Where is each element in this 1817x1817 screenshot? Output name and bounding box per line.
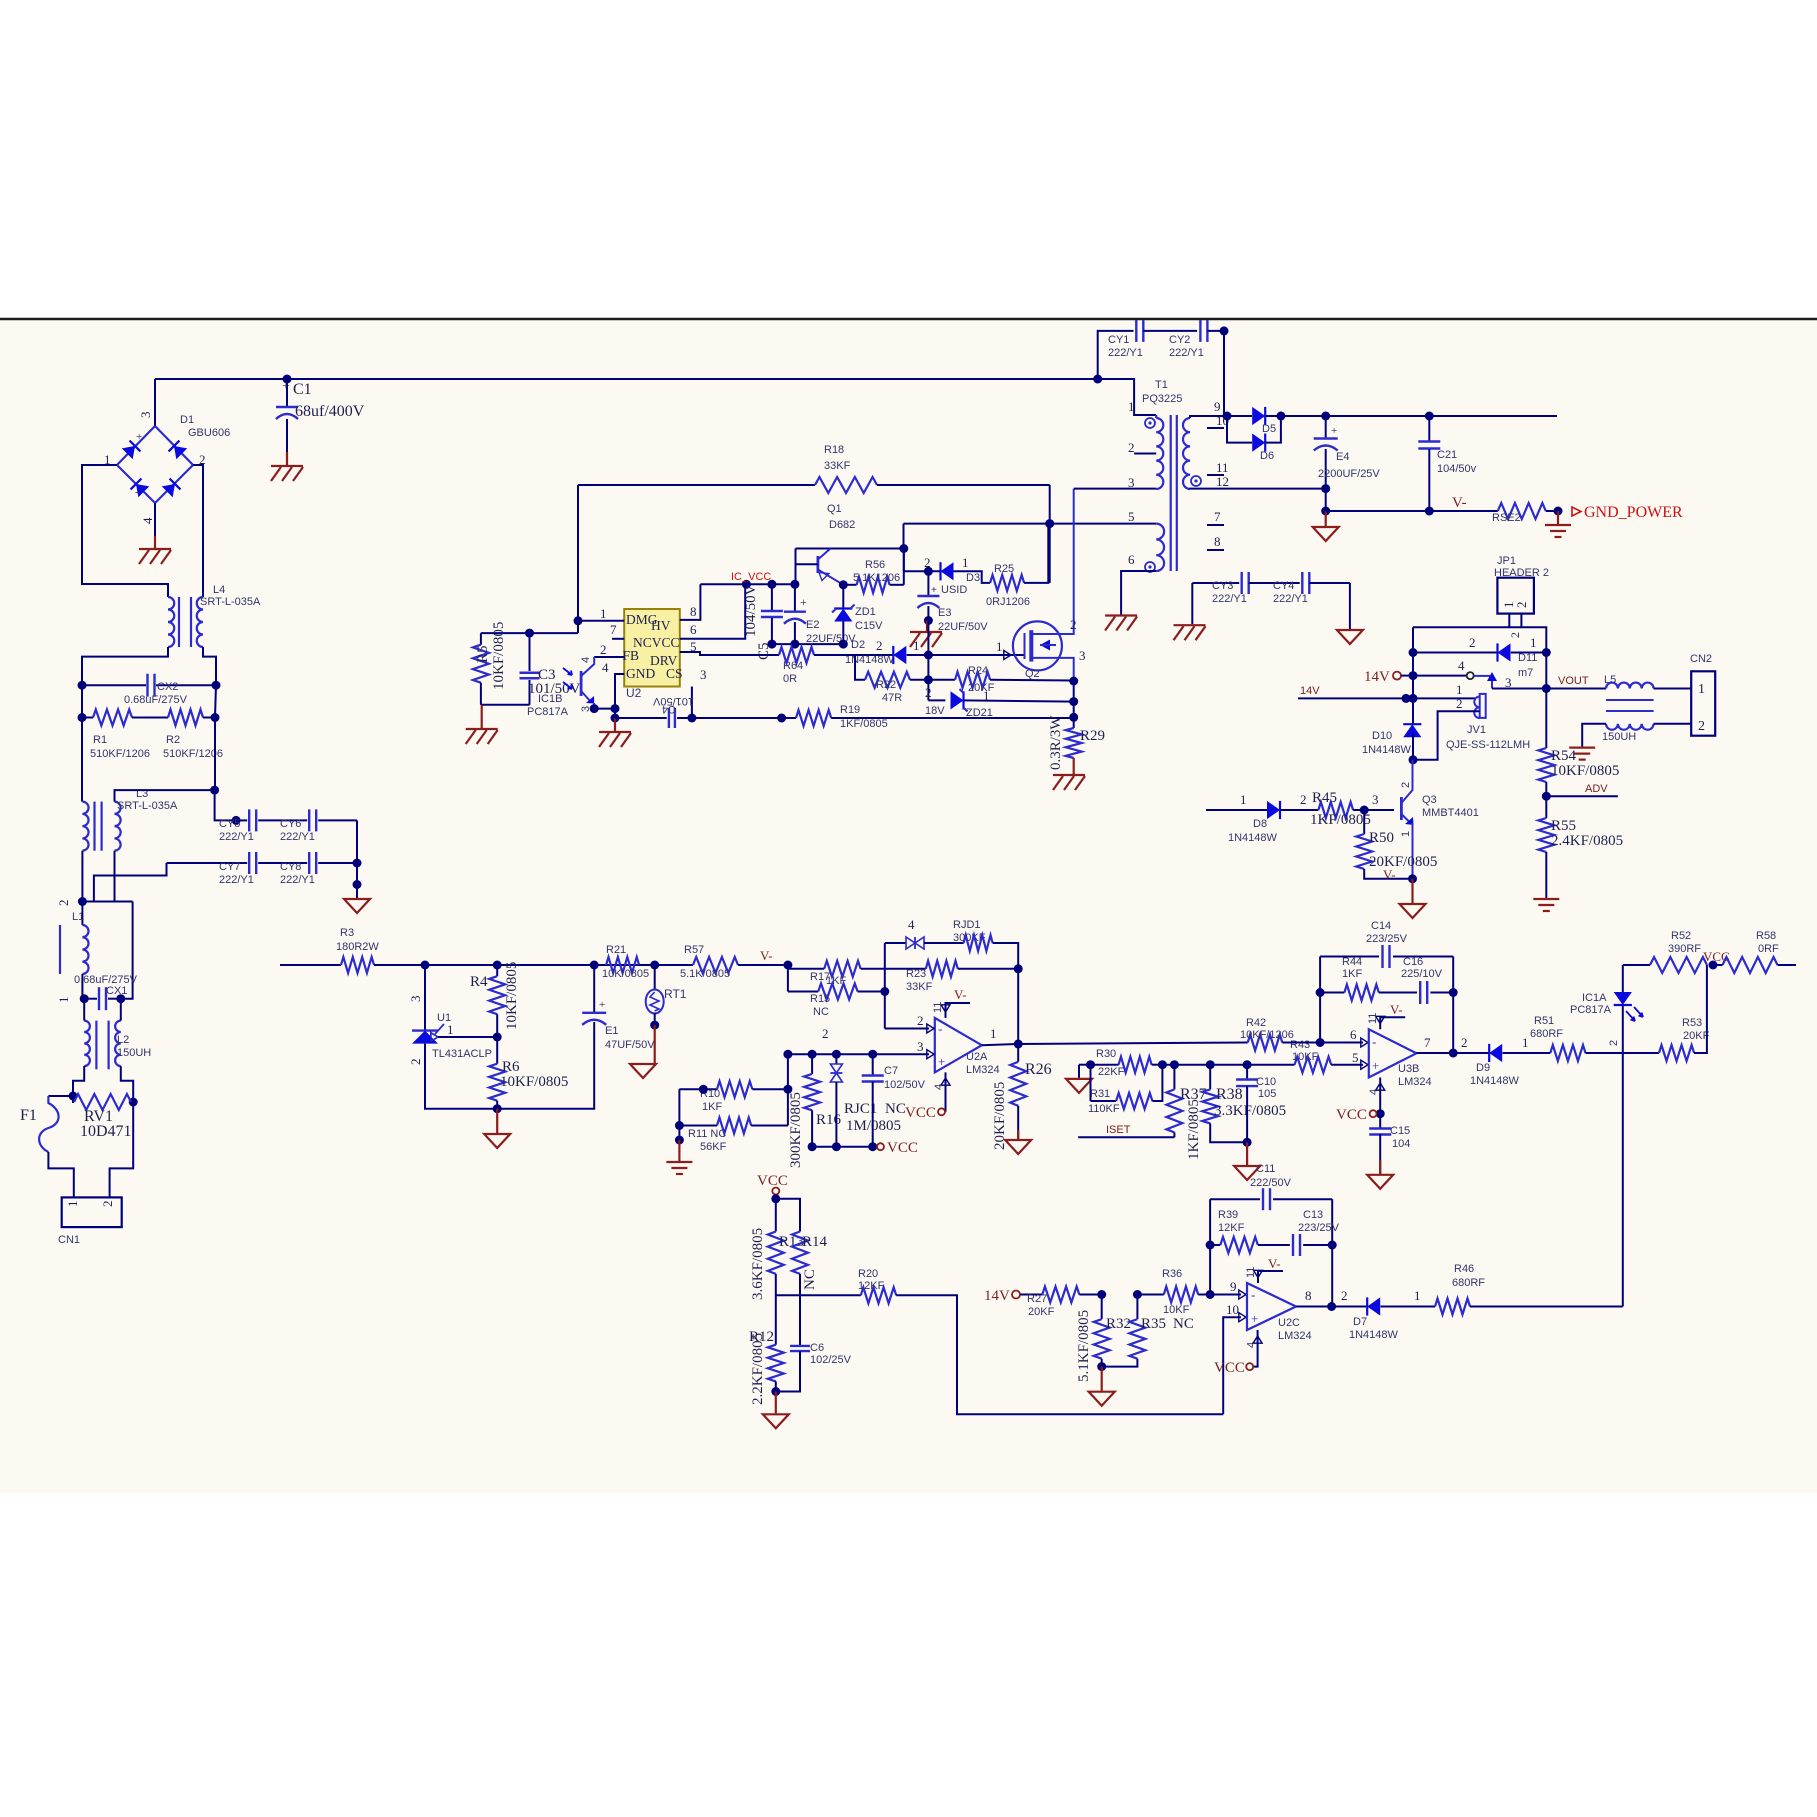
svg-text:ZD21: ZD21 [966,707,993,719]
svg-text:+: + [800,595,807,609]
svg-text:222/Y1: 222/Y1 [280,874,315,886]
svg-text:PQ3225: PQ3225 [1142,393,1182,405]
svg-text:1KF/0805: 1KF/0805 [1310,812,1371,828]
svg-text:222/Y1: 222/Y1 [1169,347,1204,359]
svg-text:510KF/1206: 510KF/1206 [90,748,150,760]
svg-text:2: 2 [822,1026,829,1041]
svg-text:-: - [1251,1287,1255,1302]
svg-text:1: 1 [962,555,969,570]
svg-text:IC1A: IC1A [1582,992,1607,1004]
svg-text:CY3: CY3 [1212,580,1233,592]
svg-text:10KF: 10KF [1292,1051,1319,1063]
svg-text:680RF: 680RF [1530,1028,1563,1040]
svg-text:56KF: 56KF [700,1141,727,1153]
svg-text:R56: R56 [865,559,885,571]
svg-text:C15: C15 [1390,1125,1410,1137]
svg-text:1KF/0805: 1KF/0805 [1186,1099,1202,1160]
svg-text:GBU606: GBU606 [188,427,230,439]
svg-text:R51: R51 [1534,1015,1554,1027]
svg-text:2: 2 [1128,440,1135,455]
svg-text:150UH: 150UH [117,1047,151,1059]
svg-text:7: 7 [1214,509,1221,524]
svg-text:R4: R4 [470,974,488,990]
svg-text:0.3R/3W: 0.3R/3W [1048,715,1064,770]
svg-text:+: + [931,585,937,596]
svg-text:ADV: ADV [1585,783,1608,795]
svg-text:3: 3 [700,667,707,682]
svg-text:20KF: 20KF [1028,1306,1055,1318]
svg-text:105: 105 [1258,1088,1276,1100]
svg-text:R38: R38 [1216,1086,1243,1103]
svg-text:R5: R5 [475,645,491,663]
svg-text:LM324: LM324 [1398,1076,1432,1088]
svg-text:2: 2 [876,638,883,653]
svg-text:U2A: U2A [966,1051,988,1063]
svg-text:12KF: 12KF [858,1280,885,1292]
svg-text:8: 8 [1214,534,1221,549]
svg-text:JV1: JV1 [1467,724,1486,736]
svg-text:R20: R20 [858,1268,878,1280]
svg-text:4: 4 [1368,1089,1380,1095]
svg-text:HEADER 2: HEADER 2 [1494,567,1549,579]
svg-text:2: 2 [1608,1040,1620,1046]
svg-text:C13: C13 [1303,1209,1323,1221]
svg-text:180R2W: 180R2W [336,941,379,953]
svg-text:390RF: 390RF [1668,943,1701,955]
svg-text:0.68uF/275V: 0.68uF/275V [124,694,188,706]
svg-text:6: 6 [690,622,697,637]
svg-text:102/50V: 102/50V [884,1079,926,1091]
svg-text:R45: R45 [1312,790,1337,806]
svg-text:150UH: 150UH [1602,731,1636,743]
svg-text:RSE2: RSE2 [1492,512,1521,524]
svg-text:U2: U2 [626,686,642,700]
svg-text:0RJ1206: 0RJ1206 [986,596,1030,608]
svg-text:6: 6 [1350,1027,1357,1042]
svg-text:L1: L1 [72,911,84,923]
svg-text:1: 1 [996,639,1003,654]
svg-text:V-: V- [760,948,773,963]
svg-text:4: 4 [1246,1342,1258,1348]
svg-text:223/25V: 223/25V [1366,933,1408,945]
svg-text:222/Y1: 222/Y1 [280,831,315,843]
svg-text:R3: R3 [340,927,354,939]
svg-text:R46: R46 [1454,1263,1474,1275]
svg-text:D9: D9 [1476,1062,1490,1074]
svg-text:R22: R22 [876,679,896,691]
svg-text:R29: R29 [1080,728,1105,744]
svg-text:1N4148W: 1N4148W [1362,744,1412,756]
svg-text:HV: HV [651,618,671,633]
svg-text:D11: D11 [1518,652,1537,664]
svg-text:+: + [599,999,605,1011]
svg-text:10: 10 [1226,1302,1239,1317]
svg-text:2: 2 [925,685,932,700]
svg-text:C21: C21 [1437,449,1457,461]
svg-text:L2: L2 [117,1034,129,1046]
svg-text:CN1: CN1 [58,1234,80,1246]
svg-text:PC817A: PC817A [1570,1004,1612,1016]
svg-text:CY6: CY6 [280,818,301,830]
svg-text:2: 2 [1341,1288,1348,1303]
svg-text:18V: 18V [925,705,945,717]
svg-text:CX2: CX2 [157,681,178,693]
svg-text:1: 1 [1240,792,1247,807]
svg-text:C14: C14 [1371,920,1391,932]
svg-text:R35: R35 [1141,1316,1166,1332]
svg-text:NC: NC [802,1269,818,1290]
svg-text:R32: R32 [1106,1316,1131,1332]
svg-text:5: 5 [1352,1050,1359,1065]
svg-text:R50: R50 [1369,830,1394,846]
svg-text:E1: E1 [605,1025,618,1037]
svg-text:R58: R58 [1756,930,1776,942]
svg-text:+: + [1331,425,1337,437]
svg-text:5.1K/0805: 5.1K/0805 [680,968,730,980]
svg-text:1: 1 [983,688,990,703]
svg-text:R15: R15 [810,993,830,1005]
svg-text:3: 3 [408,996,423,1003]
svg-text:RJD1: RJD1 [953,919,981,931]
svg-text:C15V: C15V [855,620,883,632]
svg-text:1KF/0805: 1KF/0805 [840,718,888,730]
svg-text:D7: D7 [1353,1316,1367,1328]
svg-text:1: 1 [990,1026,997,1041]
svg-text:102/25V: 102/25V [810,1354,852,1366]
svg-text:R14: R14 [802,1234,828,1250]
svg-text:CS: CS [666,666,683,681]
svg-text:10D471: 10D471 [80,1123,132,1140]
svg-text:C16: C16 [1403,956,1423,968]
svg-text:14V: 14V [1364,669,1390,685]
svg-text:101/50V: 101/50V [652,695,694,707]
svg-text:SRT-L-035A: SRT-L-035A [117,800,178,812]
svg-text:R24: R24 [968,665,988,677]
svg-text:GND_POWER: GND_POWER [1584,504,1683,521]
svg-text:CY4: CY4 [1273,580,1294,592]
svg-text:CY7: CY7 [219,861,240,873]
svg-text:V-: V- [1452,495,1466,511]
svg-text:R18: R18 [824,444,844,456]
svg-text:R53: R53 [1682,1017,1702,1029]
svg-text:+: + [1372,1058,1379,1073]
svg-text:11: 11 [1245,1267,1257,1278]
svg-text:4: 4 [580,657,592,663]
svg-text:1: 1 [1414,1288,1421,1303]
svg-text:3: 3 [1372,792,1379,807]
svg-text:2: 2 [1461,1035,1468,1050]
svg-text:D2: D2 [851,639,865,651]
svg-text:222/Y1: 222/Y1 [1212,593,1247,605]
svg-text:SRT-L-035A: SRT-L-035A [200,596,261,608]
svg-text:10K/0805: 10K/0805 [602,968,649,980]
svg-text:3.6KF/0805: 3.6KF/0805 [750,1228,766,1300]
svg-text:NC: NC [885,1101,906,1117]
svg-text:D3: D3 [966,572,980,584]
svg-text:10KF/0805: 10KF/0805 [1551,763,1619,779]
svg-text:Q3: Q3 [1422,794,1437,806]
svg-text:R44: R44 [1342,956,1362,968]
svg-text:225/10V: 225/10V [1401,968,1443,980]
svg-text:R21: R21 [606,944,626,956]
svg-text:1N4148W: 1N4148W [1349,1329,1399,1341]
svg-text:1: 1 [1698,682,1705,697]
svg-text:2: 2 [408,1059,423,1066]
svg-text:2: 2 [1300,792,1307,807]
svg-text:33KF: 33KF [824,460,851,472]
svg-text:VCC: VCC [905,1105,936,1121]
svg-text:11: 11 [1367,1013,1379,1024]
svg-text:V-: V- [1383,867,1396,882]
svg-text:ZD1: ZD1 [855,606,876,618]
svg-text:2: 2 [1698,719,1705,734]
svg-text:CX1: CX1 [106,985,127,997]
svg-text:2: 2 [1070,617,1077,632]
svg-text:R57: R57 [684,944,704,956]
svg-text:12KF: 12KF [1218,1222,1245,1234]
svg-text:2: 2 [917,1013,924,1028]
svg-text:222/50V: 222/50V [1250,1177,1292,1189]
svg-text:D6: D6 [1260,450,1274,462]
svg-text:4: 4 [933,1084,945,1090]
svg-text:+: + [136,431,142,443]
svg-text:R30: R30 [1096,1048,1116,1060]
svg-text:11: 11 [1216,460,1229,475]
svg-text:R26: R26 [1025,1061,1052,1078]
svg-text:R64: R64 [783,660,803,672]
svg-text:14V: 14V [1300,685,1320,697]
svg-text:8: 8 [1305,1288,1312,1303]
svg-text:Q2: Q2 [1025,668,1040,680]
svg-text:6: 6 [1128,552,1135,567]
svg-text:3: 3 [917,1039,924,1054]
svg-text:104/50v: 104/50v [1437,463,1477,475]
svg-text:11: 11 [932,1002,944,1013]
svg-text:47R: 47R [882,692,902,704]
svg-text:FB: FB [623,648,640,663]
svg-text:C10: C10 [1256,1076,1276,1088]
svg-text:R36: R36 [1162,1268,1182,1280]
svg-text:TL431ACLP: TL431ACLP [432,1048,492,1060]
svg-text:+: + [282,379,290,394]
svg-text:JP1: JP1 [1497,555,1516,567]
svg-text:1: 1 [913,638,920,653]
svg-text:R55: R55 [1551,818,1576,834]
svg-text:2: 2 [1456,696,1463,711]
svg-text:9: 9 [1230,1279,1237,1294]
svg-text:D8: D8 [1253,818,1267,830]
svg-text:4: 4 [908,917,915,932]
svg-text:U2C: U2C [1278,1317,1300,1329]
svg-text:3.3KF/0805: 3.3KF/0805 [1214,1103,1286,1119]
svg-text:2: 2 [1514,602,1529,609]
svg-text:QJE-SS-112LMH: QJE-SS-112LMH [1446,739,1530,751]
svg-text:4: 4 [140,517,155,524]
svg-text:10KF/1206: 10KF/1206 [1240,1029,1294,1041]
svg-text:2: 2 [1469,635,1476,650]
svg-text:R42: R42 [1246,1017,1266,1029]
svg-text:47UF/50V: 47UF/50V [605,1039,655,1051]
svg-text:10KF/0805: 10KF/0805 [500,1074,568,1090]
svg-text:1: 1 [1456,682,1463,697]
svg-text:33KF: 33KF [906,981,933,993]
svg-text:0RF: 0RF [1758,943,1779,955]
svg-text:V-: V- [954,987,967,1002]
svg-text:4: 4 [602,660,609,675]
svg-text:D10: D10 [1372,730,1392,742]
svg-text:C1: C1 [293,381,312,398]
svg-text:C7: C7 [884,1065,898,1077]
svg-text:0R: 0R [783,673,797,685]
svg-text:300KF/0805: 300KF/0805 [788,1092,804,1168]
svg-text:D5: D5 [1262,423,1276,435]
svg-text:1: 1 [447,1022,454,1037]
svg-text:+: + [938,1054,945,1069]
svg-text:E2: E2 [806,619,819,631]
svg-text:104: 104 [1392,1138,1410,1150]
svg-text:R23: R23 [906,968,926,980]
svg-text:GND: GND [626,666,655,681]
svg-text:10KF/0805: 10KF/0805 [504,962,520,1030]
svg-text:8: 8 [690,604,697,619]
svg-text:NC: NC [1173,1316,1194,1332]
svg-text:1: 1 [600,606,607,621]
svg-text:USID: USID [941,584,967,596]
svg-text:E3: E3 [938,607,951,619]
svg-text:2: 2 [56,900,71,907]
svg-text:7: 7 [610,622,617,637]
svg-text:CY1: CY1 [1108,334,1129,346]
svg-text:3: 3 [138,412,153,419]
svg-text:4: 4 [1458,658,1465,673]
svg-text:U3B: U3B [1398,1063,1419,1075]
svg-text:RT1: RT1 [664,987,687,1001]
svg-text:110KF: 110KF [1088,1103,1120,1115]
svg-text:VCC: VCC [757,1173,788,1189]
svg-text:VCC: VCC [887,1140,918,1156]
svg-text:MMBT4401: MMBT4401 [1422,807,1479,819]
svg-text:D1: D1 [180,414,194,426]
svg-text:C6: C6 [810,1342,824,1354]
svg-text:510KF/1206: 510KF/1206 [163,748,223,760]
svg-text:222/Y1: 222/Y1 [1273,593,1308,605]
svg-text:LM324: LM324 [1278,1330,1312,1342]
svg-text:10KF/0805: 10KF/0805 [491,622,507,690]
svg-text:3: 3 [1079,648,1086,663]
svg-text:Q1: Q1 [827,503,842,515]
svg-text:R27: R27 [1027,1293,1047,1305]
svg-text:D682: D682 [829,519,855,531]
svg-text:NC: NC [813,1006,829,1018]
svg-text:22UF/50V: 22UF/50V [938,621,988,633]
svg-text:CY8: CY8 [280,861,301,873]
svg-text:+: + [1251,1311,1258,1326]
svg-text:222/Y1: 222/Y1 [219,831,254,843]
svg-text:LM324: LM324 [966,1064,1000,1076]
svg-text:R54: R54 [1551,748,1577,764]
svg-text:R39: R39 [1218,1209,1238,1221]
svg-text:1: 1 [1400,831,1412,837]
svg-text:R52: R52 [1671,930,1691,942]
svg-text:-: - [938,1021,942,1036]
svg-text:1: 1 [65,1201,80,1208]
svg-text:C11: C11 [1256,1163,1275,1175]
svg-text:1KF: 1KF [1342,968,1362,980]
svg-text:NCVCC: NCVCC [633,635,680,650]
svg-text:2: 2 [924,555,931,570]
svg-text:m7: m7 [1518,667,1533,679]
svg-text:10KF: 10KF [1163,1304,1190,1316]
svg-text:1: 1 [1530,635,1537,650]
svg-text:R6: R6 [502,1059,520,1075]
svg-text:223/25V: 223/25V [1298,1222,1340,1234]
svg-text:L4: L4 [213,584,225,596]
svg-text:R2: R2 [166,734,180,746]
svg-text:CY2: CY2 [1169,334,1190,346]
svg-text:1N4148W: 1N4148W [1470,1075,1520,1087]
svg-text:1: 1 [1128,399,1135,414]
svg-text:12: 12 [1216,474,1229,489]
svg-text:CY5: CY5 [219,818,240,830]
svg-text:1KF: 1KF [702,1101,722,1113]
svg-text:CN2: CN2 [1690,653,1712,665]
svg-text:R25: R25 [994,563,1014,575]
svg-text:R1: R1 [93,734,107,746]
svg-text:2: 2 [100,1201,115,1208]
svg-text:IC_VCC: IC_VCC [731,571,771,583]
svg-text:VOUT: VOUT [1558,675,1589,687]
svg-text:V-: V- [1268,1256,1281,1271]
svg-text:V-: V- [1390,1002,1403,1017]
svg-text:20KF: 20KF [968,682,995,694]
svg-text:7: 7 [1424,1035,1431,1050]
svg-text:F1: F1 [20,1107,37,1124]
svg-text:R31: R31 [1090,1088,1110,1100]
svg-text:9: 9 [1214,399,1221,414]
svg-text:5: 5 [1128,509,1135,524]
svg-text:1: 1 [1522,1035,1529,1050]
svg-text:2.4KF/0805: 2.4KF/0805 [1551,833,1623,849]
svg-text:IC1B: IC1B [538,693,562,705]
svg-text:VCC: VCC [1336,1107,1367,1123]
svg-text:222/Y1: 222/Y1 [219,874,254,886]
svg-text:222/Y1: 222/Y1 [1108,347,1143,359]
svg-text:2200UF/25V: 2200UF/25V [1318,468,1380,480]
svg-text:-: - [1372,1034,1376,1049]
svg-text:R19: R19 [840,704,860,716]
svg-text:2: 2 [600,642,607,657]
svg-text:5.1K1206: 5.1K1206 [853,572,900,584]
svg-text:680RF: 680RF [1452,1277,1485,1289]
svg-text:1N4148W: 1N4148W [1228,832,1278,844]
svg-text:R11 NC: R11 NC [688,1128,726,1140]
svg-text:20KF: 20KF [1683,1030,1710,1042]
svg-text:PC817A: PC817A [527,706,569,718]
svg-text:T1: T1 [1155,379,1168,391]
svg-text:VCC: VCC [1214,1360,1245,1376]
svg-text:E4: E4 [1336,451,1349,463]
svg-text:2: 2 [1508,632,1522,638]
svg-text:ISET: ISET [1106,1124,1131,1136]
svg-text:5.1KF/0805: 5.1KF/0805 [1076,1310,1092,1382]
svg-text:2: 2 [1400,782,1412,788]
svg-text:-: - [135,486,139,498]
svg-text:22KF: 22KF [1098,1066,1125,1078]
svg-text:68uf/400V: 68uf/400V [295,403,365,420]
svg-text:20KF/0805: 20KF/0805 [1369,854,1437,870]
svg-text:2.2KF/0805: 2.2KF/0805 [750,1333,766,1405]
svg-text:1: 1 [56,997,71,1004]
